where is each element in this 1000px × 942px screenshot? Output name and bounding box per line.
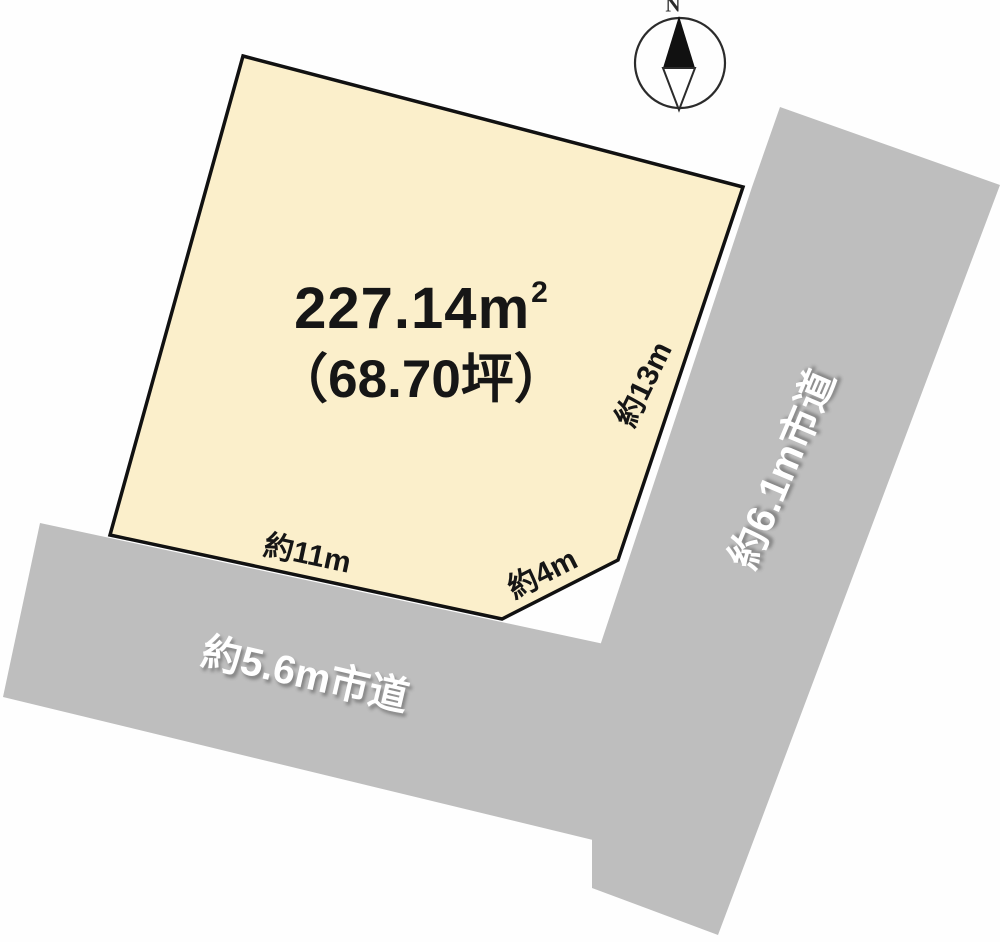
compass-needle-south: [663, 68, 695, 110]
site-plan-drawing: [0, 0, 1000, 942]
site-plan-canvas: 227.14m2 （68.70坪） 約13m 約11m 約4m 約5.6m市道 …: [0, 0, 1000, 942]
compass-needle-north: [663, 16, 695, 68]
compass-icon: [635, 16, 725, 110]
